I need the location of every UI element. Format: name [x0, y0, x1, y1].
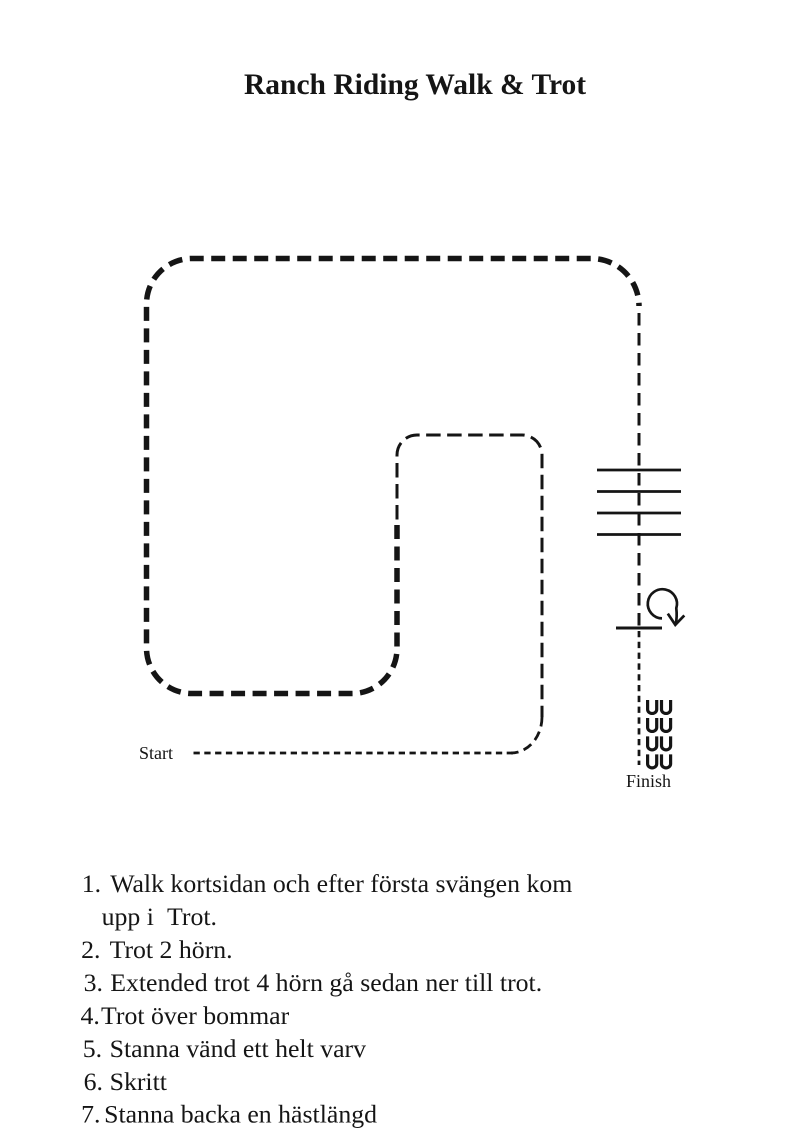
- svg-text:Trot över bommar: Trot över bommar: [101, 1001, 290, 1030]
- svg-text:5.: 5.: [83, 1034, 102, 1063]
- svg-text:Ranch Riding Walk & Trot: Ranch Riding Walk & Trot: [244, 69, 586, 101]
- svg-text:Stanna backa en hästlängd: Stanna backa en hästlängd: [104, 1099, 377, 1128]
- svg-text:Walk kortsidan och efter först: Walk kortsidan och efter första svängen …: [110, 869, 572, 898]
- svg-text:Extended trot 4 hörn gå sedan: Extended trot 4 hörn gå sedan ner till t…: [110, 968, 542, 997]
- svg-text:3.: 3.: [84, 968, 103, 997]
- svg-text:Trot 2 hörn.: Trot 2 hörn.: [110, 935, 233, 964]
- svg-text:1.: 1.: [82, 869, 101, 898]
- svg-text:Trot.: Trot.: [167, 902, 217, 931]
- svg-text:Skritt: Skritt: [110, 1067, 168, 1096]
- svg-text:7.: 7.: [81, 1099, 100, 1128]
- svg-text:Start: Start: [139, 743, 173, 763]
- svg-text:6.: 6.: [84, 1067, 103, 1096]
- svg-text:upp i: upp i: [102, 902, 154, 931]
- svg-text:2.: 2.: [81, 935, 100, 964]
- svg-text:Finish: Finish: [626, 771, 671, 791]
- svg-text:Stanna vänd ett helt varv: Stanna vänd ett helt varv: [110, 1034, 367, 1063]
- svg-text:4.: 4.: [81, 1001, 100, 1030]
